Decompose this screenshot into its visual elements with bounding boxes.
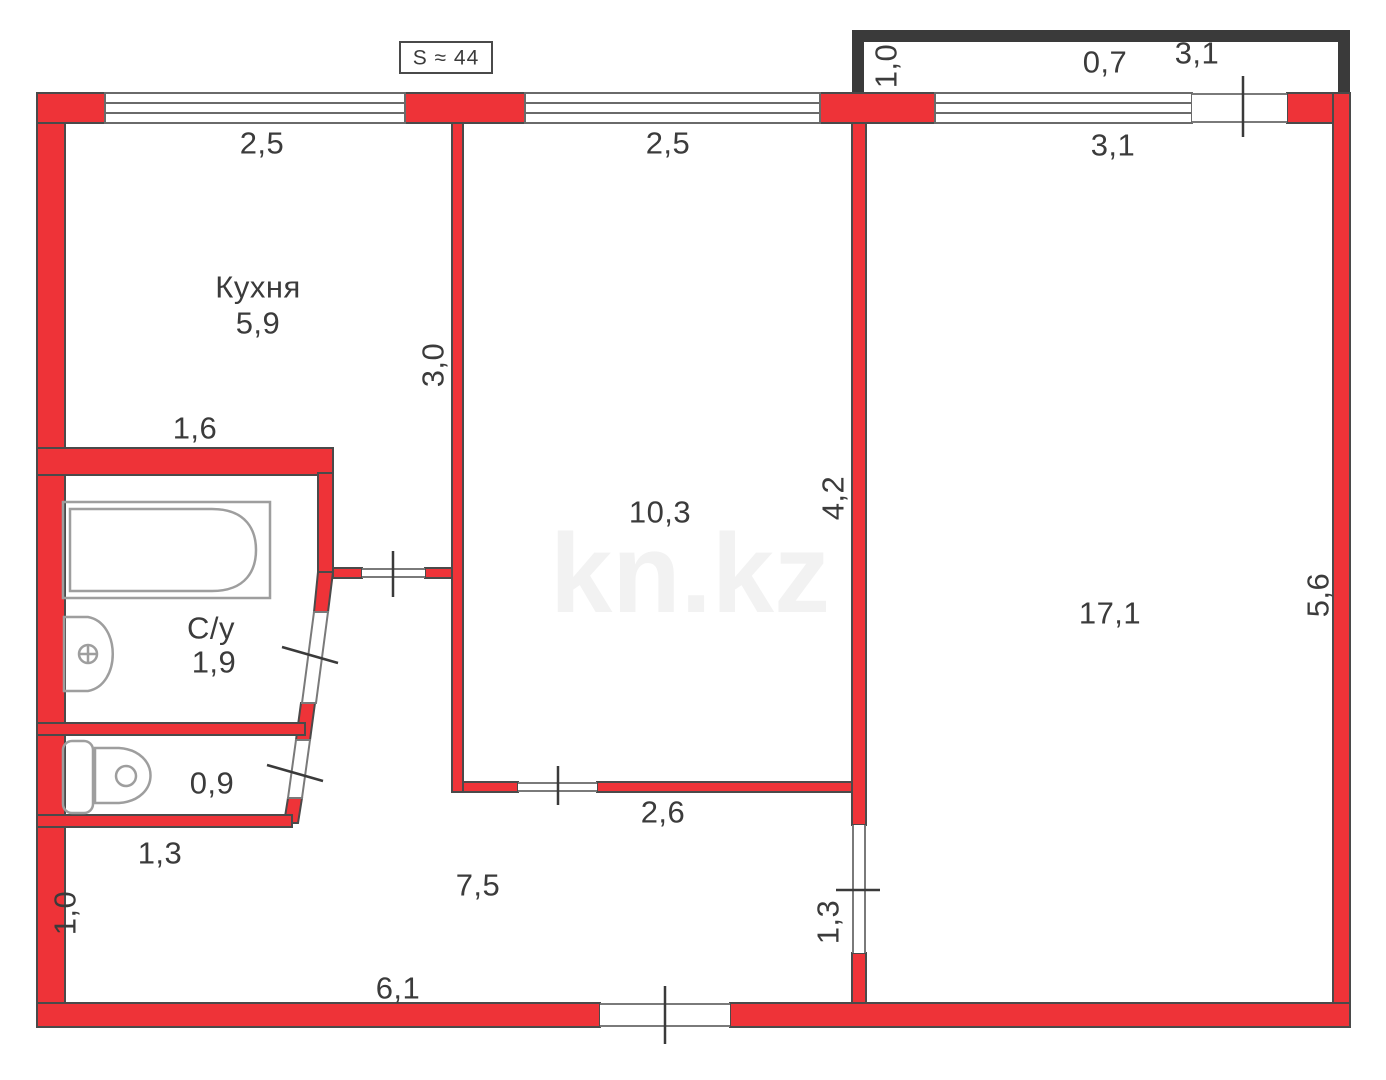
wall-top-pier <box>405 93 525 123</box>
bathtub <box>63 502 270 598</box>
wall-bath-top <box>37 448 333 475</box>
toilet <box>63 741 151 813</box>
wall-top-a <box>37 93 105 123</box>
balcony-area-label: 0,7 <box>1083 47 1128 78</box>
bathroom-area-label: 1,9 <box>192 647 237 678</box>
windows <box>105 93 1192 123</box>
dim-hall-left: 1,0 <box>50 891 81 936</box>
wall-right <box>1333 93 1350 1027</box>
dim-living-window: 2,5 <box>646 128 691 159</box>
living-window <box>525 93 820 123</box>
wall-bottom-left <box>37 1003 600 1027</box>
wall-living-bedroom-upper <box>852 123 866 825</box>
dim-balcony-width: 3,1 <box>1175 38 1220 69</box>
living-area-label: 10,3 <box>629 497 691 528</box>
kitchen-name-label: Кухня <box>215 272 300 303</box>
wall-toilet-bottom <box>37 815 292 827</box>
dim-toilet-wall: 1,3 <box>138 838 183 869</box>
bedroom-window <box>935 93 1192 123</box>
balcony-door <box>1192 93 1287 123</box>
dim-balcony-depth: 1,0 <box>871 44 902 89</box>
wall-top-b <box>820 93 935 123</box>
wall-living-bottom-left <box>463 782 518 792</box>
dim-living-door-wall: 2,6 <box>641 797 686 828</box>
dim-living-height: 4,2 <box>818 476 849 521</box>
wall-kitchen-partition <box>452 123 463 792</box>
hallway-area-label: 7,5 <box>456 870 501 901</box>
dim-bath-top-wall: 1,6 <box>173 413 218 444</box>
floor-plan-svg: kn.kz <box>0 0 1386 1080</box>
wall-bottom-right <box>730 1003 1350 1027</box>
dim-kitchen-height: 3,0 <box>418 343 449 388</box>
kitchen-window <box>105 93 405 123</box>
bedroom-area-label: 17,1 <box>1079 598 1141 629</box>
toilet-area-label: 0,9 <box>190 768 235 799</box>
floor-plan: kn.kz <box>0 0 1386 1080</box>
dim-bedroom-window: 3,1 <box>1091 130 1136 161</box>
wall-living-bottom-right <box>597 782 852 792</box>
sink <box>64 617 113 691</box>
wall-left <box>37 93 65 1027</box>
wall-kitchen-door-jamb-right <box>425 568 452 578</box>
dim-bedroom-door: 1,3 <box>813 900 844 945</box>
dim-bedroom-height: 5,6 <box>1303 573 1334 618</box>
kitchen-area-label: 5,9 <box>236 308 281 339</box>
wall-living-bedroom-lower <box>852 953 866 1003</box>
dim-hall-bottom: 6,1 <box>376 973 421 1004</box>
wall-kitchen-door-jamb-left <box>333 568 362 578</box>
fixtures <box>63 502 270 813</box>
watermark-text: kn.kz <box>550 511 830 636</box>
wall-bath-right <box>318 473 333 572</box>
dim-kitchen-window: 2,5 <box>240 128 285 159</box>
toilet-door <box>288 740 310 798</box>
bathroom-name-label: С/у <box>187 613 235 644</box>
wall-bath-toilet-divider <box>37 723 305 735</box>
plan-title: S ≈ 44 <box>413 48 480 69</box>
wall-slant-a <box>314 572 333 612</box>
